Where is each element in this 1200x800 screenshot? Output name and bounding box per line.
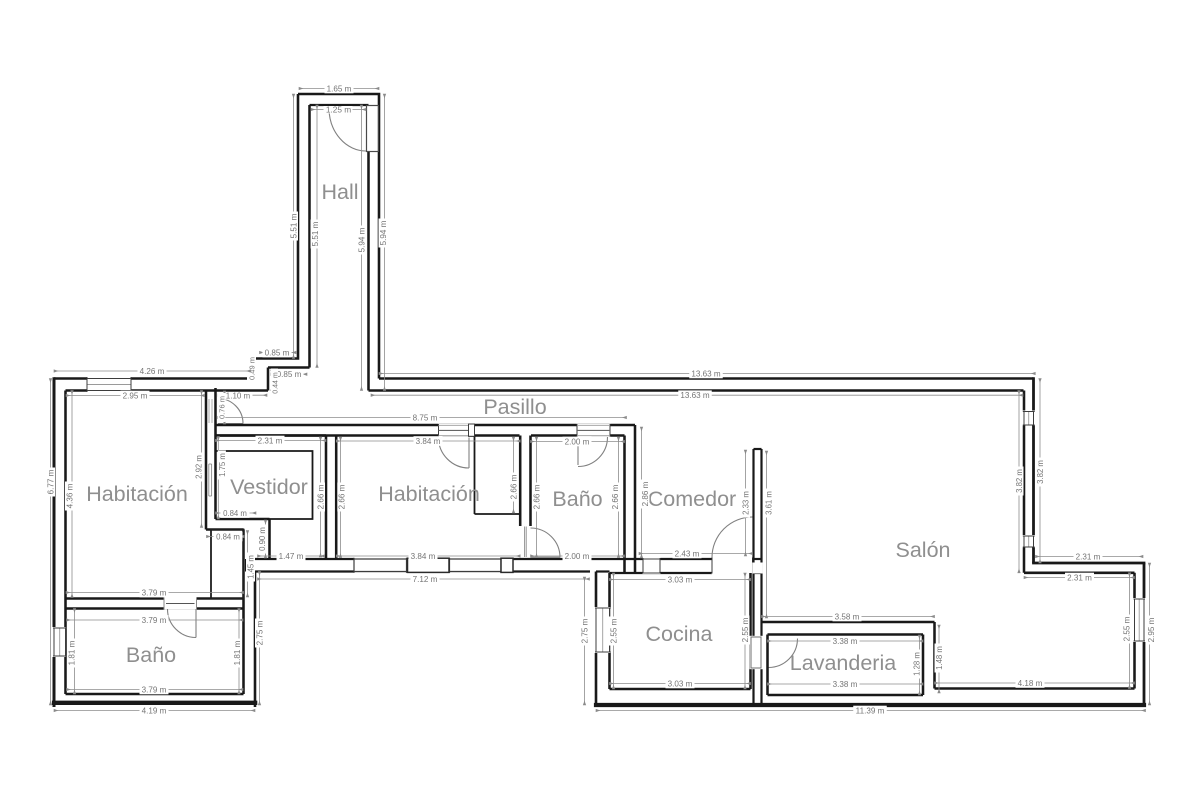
svg-text:1.47 m: 1.47 m [279,552,304,561]
svg-text:3.79 m: 3.79 m [142,589,167,598]
svg-text:8.75 m: 8.75 m [413,414,438,423]
svg-text:0.85 m: 0.85 m [265,349,290,358]
svg-text:Habitación: Habitación [378,482,480,506]
svg-text:0.49 m: 0.49 m [248,357,257,380]
svg-text:2.75 m: 2.75 m [581,618,590,643]
svg-text:2.43 m: 2.43 m [675,550,700,559]
svg-text:4.19 m: 4.19 m [142,707,167,716]
svg-text:3.84 m: 3.84 m [416,437,441,446]
svg-text:3.79 m: 3.79 m [142,616,167,625]
svg-text:1.48 m: 1.48 m [935,646,944,670]
svg-text:2.86 m: 2.86 m [641,481,650,506]
svg-text:5.51 m: 5.51 m [290,213,299,238]
svg-text:2.66 m: 2.66 m [510,474,519,499]
svg-text:2.92 m: 2.92 m [195,455,204,479]
svg-text:13.63 m: 13.63 m [680,391,710,400]
svg-text:13.63 m: 13.63 m [691,370,721,379]
svg-text:2.55 m: 2.55 m [1123,616,1132,641]
svg-text:5.51 m: 5.51 m [311,221,320,246]
svg-text:0.85 m: 0.85 m [277,370,302,379]
svg-text:2.55 m: 2.55 m [741,617,750,642]
svg-text:7.12 m: 7.12 m [413,575,438,584]
svg-text:2.31 m: 2.31 m [1076,553,1101,562]
svg-text:1.10 m: 1.10 m [226,392,251,401]
svg-text:3.03 m: 3.03 m [668,576,693,585]
svg-text:4.18 m: 4.18 m [1018,679,1043,688]
svg-text:0.84 m: 0.84 m [216,533,240,542]
svg-text:3.61 m: 3.61 m [765,491,774,515]
svg-text:1.25 m: 1.25 m [326,105,351,115]
svg-text:3.82 m: 3.82 m [1036,460,1045,484]
svg-text:3.03 m: 3.03 m [668,680,693,689]
svg-text:Comedor: Comedor [648,487,736,511]
svg-text:1.81 m: 1.81 m [233,640,242,665]
svg-text:1.28 m: 1.28 m [913,652,922,676]
svg-text:2.00 m: 2.00 m [565,438,590,447]
svg-text:3.79 m: 3.79 m [142,686,167,695]
svg-text:5.94 m: 5.94 m [358,227,367,252]
svg-text:3.82 m: 3.82 m [1015,469,1024,493]
svg-text:2.75 m: 2.75 m [256,620,265,645]
svg-text:1.75 m: 1.75 m [218,453,227,477]
svg-text:11.39 m: 11.39 m [856,707,885,716]
svg-text:Baño: Baño [126,643,176,667]
svg-text:2.00 m: 2.00 m [565,552,590,561]
svg-text:5.94 m: 5.94 m [379,220,388,245]
svg-text:4.26 m: 4.26 m [140,367,165,376]
svg-text:2.66 m: 2.66 m [533,484,542,509]
svg-text:1.65 m: 1.65 m [327,85,352,94]
svg-text:2.95 m: 2.95 m [1147,617,1156,642]
svg-text:0.90 m: 0.90 m [258,527,267,551]
svg-text:4.36 m: 4.36 m [66,483,75,508]
svg-text:2.66 m: 2.66 m [338,484,347,509]
svg-text:3.38 m: 3.38 m [833,637,858,646]
svg-text:Pasillo: Pasillo [483,395,546,419]
svg-text:3.84 m: 3.84 m [411,552,436,561]
svg-text:Habitación: Habitación [86,482,188,506]
svg-text:0.76 m: 0.76 m [218,396,227,419]
svg-text:Cocina: Cocina [646,622,713,646]
svg-text:2.66 m: 2.66 m [611,484,620,509]
svg-text:Lavanderia: Lavanderia [790,651,896,675]
svg-text:1.45 m: 1.45 m [247,555,256,579]
svg-text:2.31 m: 2.31 m [1067,574,1092,583]
svg-text:0.84 m: 0.84 m [223,509,247,518]
svg-text:3.38 m: 3.38 m [833,680,858,689]
svg-text:Salón: Salón [896,538,951,562]
svg-text:2.55 m: 2.55 m [610,618,619,643]
svg-text:Vestidor: Vestidor [230,475,308,499]
svg-text:0.44 m: 0.44 m [273,372,280,394]
svg-text:6.77 m: 6.77 m [47,469,56,494]
svg-text:2.33 m: 2.33 m [742,491,751,515]
svg-text:Hall: Hall [321,180,358,204]
svg-text:2.66 m: 2.66 m [317,484,326,509]
svg-text:3.58 m: 3.58 m [835,613,860,622]
svg-text:2.31 m: 2.31 m [258,437,283,446]
svg-text:2.95 m: 2.95 m [123,392,148,401]
svg-text:Baño: Baño [552,487,602,511]
svg-text:1.81 m: 1.81 m [68,640,77,665]
